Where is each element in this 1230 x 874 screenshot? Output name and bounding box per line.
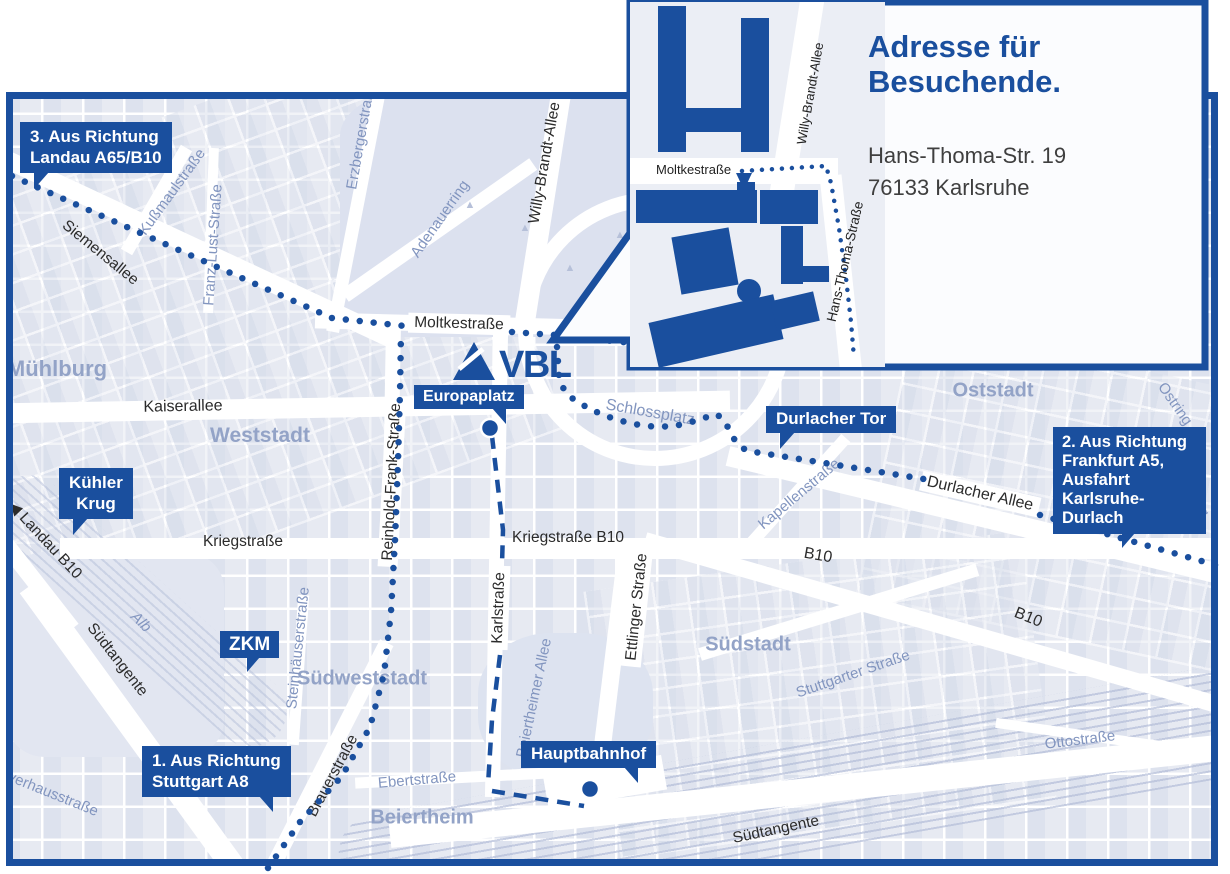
callout-from-stuttgart: 1. Aus Richtung Stuttgart A8 (142, 746, 291, 797)
callout-line: Frankfurt A5, (1062, 452, 1197, 471)
label-kaiserallee: Kaiserallee (143, 397, 222, 416)
callout-line: ZKM (229, 633, 270, 656)
callout-zkm: ZKM (220, 631, 279, 658)
callout-from-landau: 3. Aus Richtung Landau A65/B10 (20, 122, 172, 173)
tree-icon: ▲ (695, 209, 706, 221)
tree-icon: ▲ (465, 199, 476, 211)
callout-line: 1. Aus Richtung (152, 751, 281, 772)
callout-line: Krug (69, 494, 123, 515)
district-beiertheim: Beiertheim (370, 807, 473, 830)
inset-label-moltkestrasse: Moltkestraße (656, 162, 731, 177)
district-suedstadt: Südstadt (705, 634, 791, 657)
callout-line: Ausfahrt (1062, 471, 1197, 490)
tree-icon: ▲ (760, 262, 771, 274)
district-suedweststadt: Südweststadt (297, 668, 427, 691)
district-muehlburg: Mühlburg (7, 356, 107, 382)
callout-line: Stuttgart A8 (152, 772, 281, 793)
callout-hauptbahnhof: Hauptbahnhof (521, 741, 656, 768)
tree-icon: ▲ (615, 229, 626, 241)
callout-line: Kühler (69, 473, 123, 494)
callout-kuehler-krug: Kühler Krug (59, 468, 133, 519)
callout-durlacher-tor: Durlacher Tor (766, 406, 896, 433)
callout-line: Karlsruhe-Durlach (1062, 490, 1197, 528)
label-kriegstrasse-b10: Kriegstraße B10 (512, 529, 624, 547)
label-kriegstrasse: Kriegstraße (203, 533, 283, 551)
callout-europaplatz: Europaplatz (414, 385, 524, 409)
schlossplatz-ring-road (518, 192, 792, 466)
callout-line: Durlacher Tor (776, 409, 886, 430)
tree-icon: ▲ (565, 262, 576, 274)
inset-title: Adresse für Besuchende. (868, 30, 1168, 99)
label-karlstrasse: Karlstraße (488, 566, 511, 650)
tree-icon: ▲ (520, 222, 531, 234)
vbl-logo: VBL (452, 341, 571, 381)
callout-line: Landau A65/B10 (30, 148, 162, 169)
vbl-logo-triangle-icon (452, 341, 496, 381)
inset-address: Hans-Thoma-Str. 19 76133 Karlsruhe (868, 140, 1066, 204)
district-weststadt: Weststadt (210, 424, 310, 448)
callout-line: 3. Aus Richtung (30, 127, 162, 148)
label-moltkestrasse: Moltkestraße (408, 313, 510, 336)
callout-line: Europaplatz (423, 387, 515, 407)
district-oststadt: Oststadt (952, 380, 1033, 403)
callout-line: Hauptbahnhof (531, 744, 646, 765)
vbl-logo-text: VBL (499, 349, 571, 381)
callout-line: 2. Aus Richtung (1062, 433, 1197, 452)
inset-address-line1: Hans-Thoma-Str. 19 (868, 140, 1066, 172)
vbl-directions-map: { "colors": { "brand_blue": "#1a4f9e", "… (0, 0, 1230, 874)
callout-from-frankfurt: 2. Aus Richtung Frankfurt A5, Ausfahrt K… (1053, 427, 1206, 534)
inset-address-line2: 76133 Karlsruhe (868, 172, 1066, 204)
